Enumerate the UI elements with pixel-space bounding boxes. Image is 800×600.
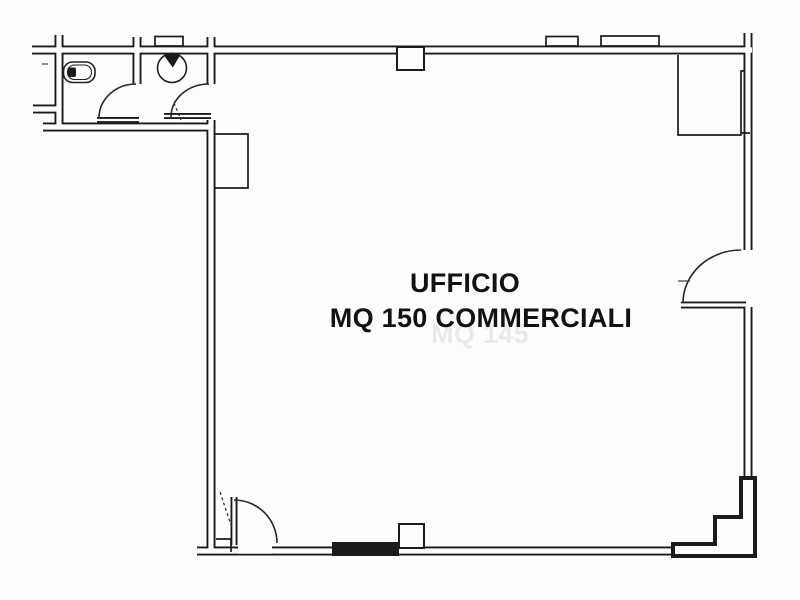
room-label-line1: UFFICIO <box>410 268 520 298</box>
wc-door-arc <box>99 84 136 118</box>
upper-wall-markers <box>155 36 659 46</box>
room-label-ghost: MQ 145 <box>431 319 529 349</box>
wall-pilaster-bump <box>216 134 249 188</box>
toilet-cistern <box>68 68 77 78</box>
floor-plan-drawing: UFFICIO MQ 150 COMMERCIALI MQ 145 <box>0 0 800 600</box>
wall-recess <box>678 55 750 135</box>
anteroom-door-arc <box>171 84 209 117</box>
toilet-fixture <box>64 62 96 83</box>
washbasin-tap <box>164 53 180 68</box>
upper-marker-3 <box>601 36 659 46</box>
walls-hollow-pass <box>32 33 752 551</box>
upper-marker-1 <box>155 37 183 47</box>
upper-marker-2 <box>546 37 578 47</box>
wall-pillar-top <box>397 47 424 70</box>
floor-plan-page: UFFICIO MQ 150 COMMERCIALI MQ 145 <box>0 0 800 600</box>
structural-pier <box>673 478 755 556</box>
bottom-entrance-door-arc <box>234 500 277 543</box>
wall-segments <box>32 33 752 551</box>
reinforced-wall-band <box>332 542 399 556</box>
wall-pillar-bottom <box>399 524 424 548</box>
door-annotation-dashes <box>174 103 232 528</box>
walls <box>32 33 752 551</box>
side-entrance-door-arc <box>683 250 741 303</box>
washbasin-fixture <box>158 53 187 83</box>
